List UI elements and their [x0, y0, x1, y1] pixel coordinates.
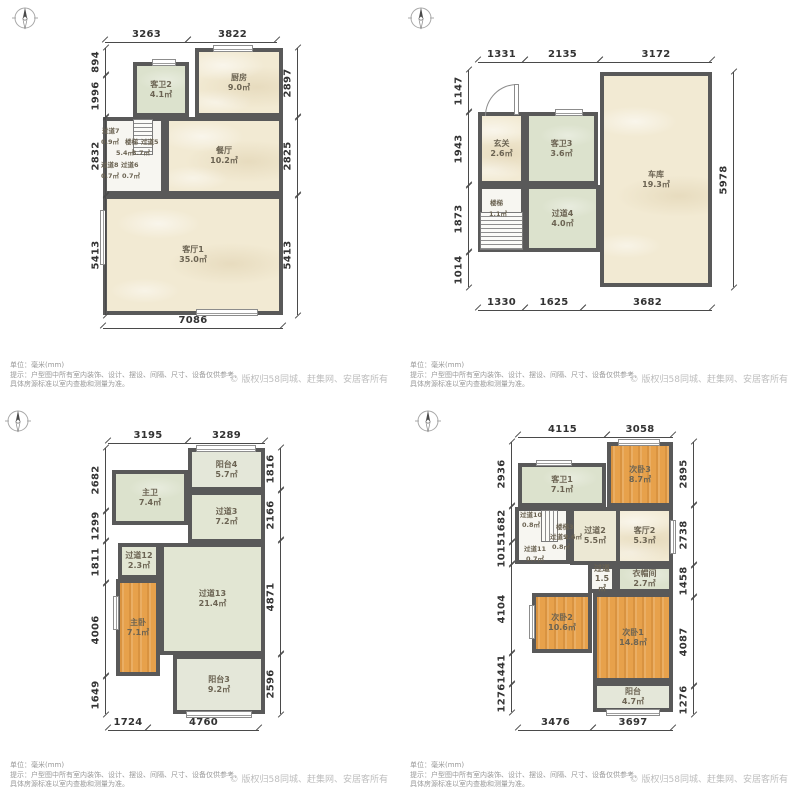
room: 客卫33.6㎡ [525, 112, 598, 185]
dimension-label: 1015 [497, 538, 508, 567]
dimension-line [188, 443, 265, 444]
room-area: 7.1㎡ [127, 628, 149, 638]
room-area: 7.4㎡ [139, 498, 161, 508]
room-label: 过道44.0㎡ [551, 209, 573, 229]
dimension-label: 2825 [283, 141, 294, 170]
room: 客厅25.3㎡ [616, 507, 673, 565]
room: 衣帽间2.7㎡ [616, 565, 673, 593]
dimension-line [478, 62, 525, 63]
room-area: 2.6㎡ [490, 149, 512, 159]
floor-2: 玄关2.6㎡客卫33.6㎡车库19.3㎡过道44.0㎡楼梯1.1㎡1331213… [400, 0, 800, 400]
dimension-line [693, 505, 694, 565]
dimension-line [593, 730, 673, 731]
window-marker [606, 709, 660, 716]
room-label: 过道37.2㎡ [215, 507, 237, 527]
copyright-watermark: © 版权归58同城、赶集网、安居客所有 [230, 772, 388, 785]
dimension-label: 2895 [679, 459, 690, 488]
small-room-label: 0.7㎡ [526, 556, 544, 563]
floorplan-sheet: 厨房9.0㎡客卫24.1㎡餐厅10.2㎡客厅135.0㎡过道70.9㎡楼梯过道5… [0, 0, 800, 800]
window-marker [529, 605, 535, 639]
door-swing-icon [485, 84, 517, 116]
dimension-label: 1147 [454, 76, 465, 105]
room-label: 阳台39.2㎡ [208, 675, 230, 695]
dimension-label: 7086 [178, 315, 207, 326]
room-label: 阳台4.7㎡ [622, 687, 644, 707]
dimension-label: 5978 [719, 165, 730, 194]
room-label: 过道1321.4㎡ [199, 589, 227, 609]
room-name: 餐厅 [210, 146, 238, 156]
room-name: 阳台 [622, 687, 644, 697]
dimension-line [733, 72, 734, 287]
dimension-label: 3058 [625, 424, 654, 435]
disclaimer: 单位：毫米(mm)提示：户型图中所有室内装饰、设计、摆设、间隔、尺寸、设备仅供参… [10, 361, 241, 390]
compass-icon [408, 5, 434, 31]
small-room-label: 0.7㎡ [122, 173, 140, 180]
window-marker [618, 439, 660, 446]
room-label: 客卫17.1㎡ [551, 475, 573, 495]
room: 次卧38.7㎡ [607, 442, 673, 507]
room-area: 2.3㎡ [125, 561, 152, 571]
dimension-label: 2936 [497, 459, 508, 488]
disclaimer-line1: 提示：户型图中所有室内装饰、设计、摆设、间隔、尺寸、设备仅供参考， [10, 771, 241, 781]
dimension-label: 4006 [91, 615, 102, 644]
room-name: 过道2 [584, 526, 606, 536]
room-label: 玄关2.6㎡ [490, 139, 512, 159]
room: 过道1.5㎡ [588, 565, 616, 593]
room-label: 阳台45.7㎡ [215, 460, 237, 480]
room-label: 过道25.5㎡ [584, 526, 606, 546]
dimension-label: 2682 [91, 465, 102, 494]
room-area: 7.2㎡ [215, 517, 237, 527]
room-name: 衣帽间 [633, 569, 657, 579]
dimension-label: 2832 [91, 141, 102, 170]
room-area: 2.7㎡ [633, 579, 657, 589]
unit-label: 单位：毫米(mm) [10, 361, 241, 371]
dimension-line [518, 730, 593, 731]
room-label: 餐厅10.2㎡ [210, 146, 238, 166]
floor-3: 阳台45.7㎡主卫7.4㎡过道37.2㎡过道122.3㎡过道1321.4㎡主卧7… [0, 400, 400, 800]
room: 餐厅10.2㎡ [165, 117, 283, 195]
room-name: 过道13 [199, 589, 227, 599]
dimension-line [511, 506, 512, 542]
room-name: 主卧 [127, 618, 149, 628]
disclaimer-line1: 提示：户型图中所有室内装饰、设计、摆设、间隔、尺寸、设备仅供参考， [410, 371, 641, 381]
room-area: 7.1㎡ [551, 485, 573, 495]
dimension-label: 1441 [497, 654, 508, 683]
dimension-line [280, 490, 281, 540]
disclaimer: 单位：毫米(mm)提示：户型图中所有室内装饰、设计、摆设、间隔、尺寸、设备仅供参… [10, 761, 241, 790]
small-room-label: 0.8㎡ [552, 544, 570, 551]
dimension-line [468, 185, 469, 252]
room-area: 5.7㎡ [215, 470, 237, 480]
dimension-label: 2897 [283, 68, 294, 97]
dimension-line [511, 564, 512, 653]
copyright-watermark: © 版权归58同城、赶集网、安居客所有 [630, 372, 788, 385]
dimension-label: 1811 [91, 547, 102, 576]
room-name: 过道 [592, 564, 612, 574]
room-name: 厨房 [228, 73, 250, 83]
room-area: 5.3㎡ [633, 536, 655, 546]
dimension-label: 1724 [113, 717, 142, 728]
room-area: 8.7㎡ [629, 475, 651, 485]
dimension-label: 4115 [548, 424, 577, 435]
dimension-label: 1299 [91, 511, 102, 540]
dimension-label: 1649 [91, 680, 102, 709]
dimension-label: 5413 [283, 240, 294, 269]
room-area: 5.5㎡ [584, 536, 606, 546]
room-name: 过道3 [215, 507, 237, 517]
small-room-label: 0.7㎡ [101, 173, 119, 180]
room-label: 客卫33.6㎡ [550, 139, 572, 159]
dimension-label: 1682 [497, 509, 508, 538]
dimension-line [511, 442, 512, 506]
room-area: 35.0㎡ [179, 255, 207, 265]
dimension-line [511, 684, 512, 712]
dimension-label: 4104 [497, 594, 508, 623]
small-room-label: 1.1㎡ [489, 211, 507, 218]
small-room-label: 楼梯 [125, 139, 138, 146]
dimension-line [693, 686, 694, 714]
dimension-line [518, 437, 607, 438]
unit-label: 单位：毫米(mm) [410, 761, 641, 771]
dimension-label: 1276 [497, 683, 508, 712]
room-label: 衣帽间2.7㎡ [633, 569, 657, 589]
room-area: 21.4㎡ [199, 599, 227, 609]
window-marker [196, 445, 256, 452]
room-area: 10.6㎡ [548, 623, 576, 633]
door-leaf-icon [514, 84, 519, 115]
small-room-label: 楼梯 [490, 200, 503, 207]
dimension-line [108, 443, 188, 444]
dimension-label: 1276 [679, 685, 690, 714]
room: 过道44.0㎡ [525, 185, 600, 252]
dimension-label: 1330 [487, 297, 516, 308]
dimension-line [103, 328, 283, 329]
room: 主卧7.1㎡ [116, 579, 160, 676]
room-label: 次卧210.6㎡ [548, 613, 576, 633]
room-area: 4.1㎡ [150, 90, 172, 100]
room-name: 主卫 [139, 488, 161, 498]
dimension-line [105, 541, 106, 583]
small-room-label: 过道8 [101, 162, 119, 169]
dimension-line [583, 310, 712, 311]
room: 次卧114.8㎡ [593, 593, 673, 682]
dimension-line [280, 540, 281, 654]
dimension-line [105, 48, 106, 75]
dimension-label: 3172 [641, 49, 670, 60]
room: 厨房9.0㎡ [195, 48, 283, 117]
dimension-line [468, 112, 469, 185]
room-label: 客卫24.1㎡ [150, 80, 172, 100]
dimension-line [297, 195, 298, 315]
dimension-label: 2135 [548, 49, 577, 60]
room-area: 9.0㎡ [228, 83, 250, 93]
floor-4: 客卫17.1㎡次卧38.7㎡过道25.5㎡客厅25.3㎡过道1.5㎡衣帽间2.7… [400, 400, 800, 800]
dimension-line [607, 437, 673, 438]
small-room-label: 过道10 [520, 512, 542, 519]
room-label: 客厅135.0㎡ [179, 245, 207, 265]
unit-label: 单位：毫米(mm) [410, 361, 641, 371]
room: 车库19.3㎡ [600, 72, 712, 287]
window-marker [555, 109, 583, 116]
room-label: 过道1.5㎡ [592, 564, 612, 594]
room: 客厅135.0㎡ [103, 195, 283, 315]
disclaimer: 单位：毫米(mm)提示：户型图中所有室内装饰、设计、摆设、间隔、尺寸、设备仅供参… [410, 361, 641, 390]
window-marker [536, 460, 572, 466]
room: 玄关2.6㎡ [478, 112, 525, 185]
window-marker [213, 45, 253, 52]
dimension-label: 4087 [679, 627, 690, 656]
dimension-line [148, 730, 259, 731]
disclaimer-line2: 具体房源标准以室内查勘和测量为准。 [410, 380, 641, 390]
dimension-label: 1014 [454, 255, 465, 284]
room-area: 9.2㎡ [208, 685, 230, 695]
room-label: 客厅25.3㎡ [633, 526, 655, 546]
small-room-label: 2.6㎡ [564, 534, 582, 541]
room-label: 次卧38.7㎡ [629, 465, 651, 485]
small-room-label: 过道5 [141, 139, 159, 146]
room: 次卧210.6㎡ [532, 593, 592, 653]
compass-icon [5, 408, 31, 434]
window-marker [670, 520, 676, 554]
dimension-label: 3195 [133, 430, 162, 441]
room: 客卫17.1㎡ [518, 463, 606, 507]
dimension-line [105, 42, 188, 43]
dimension-label: 4760 [189, 717, 218, 728]
room: 阳台39.2㎡ [173, 655, 265, 714]
dimension-label: 2596 [266, 669, 277, 698]
room-name: 玄关 [490, 139, 512, 149]
dimension-line [105, 583, 106, 676]
dimension-label: 3476 [541, 717, 570, 728]
room-name: 次卧1 [619, 628, 647, 638]
dimension-label: 1873 [454, 204, 465, 233]
dimension-line [297, 48, 298, 117]
room-name: 阳台3 [208, 675, 230, 685]
dimension-line [105, 75, 106, 117]
room-name: 客卫1 [551, 475, 573, 485]
dimension-label: 3822 [218, 29, 247, 40]
room-name: 次卧3 [629, 465, 651, 475]
small-room-label: 0.8㎡ [522, 522, 540, 529]
dimension-line [188, 42, 277, 43]
dimension-line [105, 448, 106, 511]
dimension-line [478, 310, 525, 311]
room: 过道37.2㎡ [188, 491, 265, 543]
compass-icon [415, 408, 441, 434]
disclaimer-line1: 提示：户型图中所有室内装饰、设计、摆设、间隔、尺寸、设备仅供参考， [10, 371, 241, 381]
dimension-line [511, 542, 512, 564]
small-room-label: 3.7㎡ [132, 150, 150, 157]
dimension-line [105, 511, 106, 541]
dimension-label: 2738 [679, 520, 690, 549]
dimension-label: 894 [91, 51, 102, 73]
dimension-label: 1331 [487, 49, 516, 60]
dimension-label: 3289 [212, 430, 241, 441]
dimension-label: 1943 [454, 134, 465, 163]
dimension-label: 1625 [539, 297, 568, 308]
copyright-watermark: © 版权归58同城、赶集网、安居客所有 [630, 772, 788, 785]
dimension-label: 1458 [679, 566, 690, 595]
small-room-label: 过道11 [524, 546, 546, 553]
dimension-line [297, 117, 298, 195]
small-room-label: 过道7 [102, 128, 120, 135]
room-name: 客厅1 [179, 245, 207, 255]
small-room-label: 楼梯3 [556, 524, 574, 531]
room-area: 10.2㎡ [210, 156, 238, 166]
room-name: 过道4 [551, 209, 573, 219]
dimension-line [468, 252, 469, 287]
dimension-label: 5413 [91, 240, 102, 269]
window-marker [152, 59, 176, 66]
dimension-line [511, 653, 512, 684]
dimension-label: 2166 [266, 500, 277, 529]
room-label: 车库19.3㎡ [642, 170, 670, 190]
dimension-line [600, 62, 712, 63]
dimension-line [693, 442, 694, 505]
disclaimer: 单位：毫米(mm)提示：户型图中所有室内装饰、设计、摆设、间隔、尺寸、设备仅供参… [410, 761, 641, 790]
room: 过道1321.4㎡ [160, 543, 265, 655]
dimension-label: 3682 [633, 297, 662, 308]
small-room-label: 0.9㎡ [101, 139, 119, 146]
window-marker [113, 596, 119, 630]
room-name: 客卫2 [150, 80, 172, 90]
compass-icon [12, 5, 38, 31]
room-name: 次卧2 [548, 613, 576, 623]
room-name: 车库 [642, 170, 670, 180]
dimension-line [105, 676, 106, 714]
dimension-line [693, 597, 694, 686]
dimension-line [280, 654, 281, 714]
dimension-label: 1996 [91, 81, 102, 110]
floor-1: 厨房9.0㎡客卫24.1㎡餐厅10.2㎡客厅135.0㎡过道70.9㎡楼梯过道5… [0, 0, 400, 400]
room-label: 过道122.3㎡ [125, 551, 152, 571]
small-room-label: 过道6 [121, 162, 139, 169]
dimension-line [468, 70, 469, 112]
room-label: 主卧7.1㎡ [127, 618, 149, 638]
room-area: 14.8㎡ [619, 638, 647, 648]
dimension-line [108, 730, 148, 731]
dimension-line [280, 448, 281, 490]
room: 阳台4.7㎡ [593, 682, 673, 712]
room-area: 3.6㎡ [550, 149, 572, 159]
dimension-label: 4871 [266, 582, 277, 611]
room-area: 4.7㎡ [622, 697, 644, 707]
dimension-line [105, 195, 106, 315]
unit-label: 单位：毫米(mm) [10, 761, 241, 771]
copyright-watermark: © 版权归58同城、赶集网、安居客所有 [230, 372, 388, 385]
dimension-label: 3263 [132, 29, 161, 40]
room: 客卫24.1㎡ [133, 62, 189, 117]
room-label: 厨房9.0㎡ [228, 73, 250, 93]
room-label: 主卫7.4㎡ [139, 488, 161, 508]
dimension-line [693, 565, 694, 597]
room-name: 过道12 [125, 551, 152, 561]
room-area: 19.3㎡ [642, 180, 670, 190]
room-name: 客厅2 [633, 526, 655, 536]
room-name: 客卫3 [550, 139, 572, 149]
room-name: 阳台4 [215, 460, 237, 470]
dimension-label: 1816 [266, 454, 277, 483]
dimension-label: 3697 [618, 717, 647, 728]
disclaimer-line1: 提示：户型图中所有室内装饰、设计、摆设、间隔、尺寸、设备仅供参考， [410, 771, 641, 781]
dimension-line [525, 310, 583, 311]
disclaimer-line2: 具体房源标准以室内查勘和测量为准。 [410, 780, 641, 790]
room: 主卫7.4㎡ [112, 470, 188, 525]
room-label: 次卧114.8㎡ [619, 628, 647, 648]
dimension-line [525, 62, 600, 63]
room: 过道122.3㎡ [118, 543, 160, 579]
room-area: 1.5㎡ [592, 574, 612, 594]
disclaimer-line2: 具体房源标准以室内查勘和测量为准。 [10, 780, 241, 790]
room: 阳台45.7㎡ [188, 448, 265, 491]
disclaimer-line2: 具体房源标准以室内查勘和测量为准。 [10, 380, 241, 390]
room-area: 4.0㎡ [551, 219, 573, 229]
